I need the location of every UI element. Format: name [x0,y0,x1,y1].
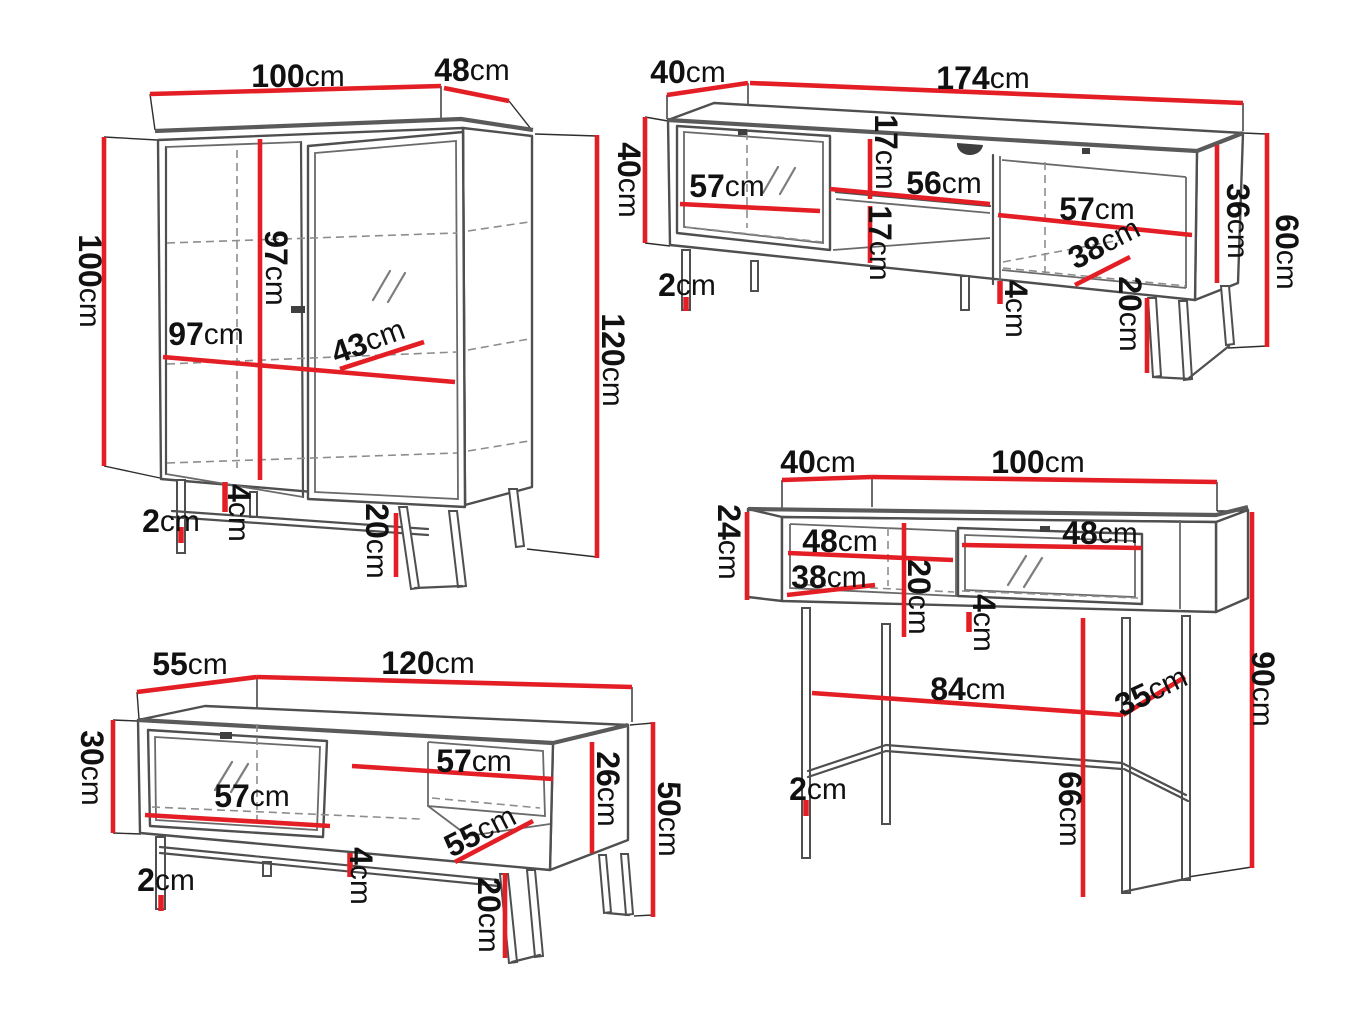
dim-label: 20cm [359,503,395,579]
tvstand-back-right-leg [1221,286,1234,345]
extension-line [535,134,597,136]
tv-stand: 40cm 174cm 40cm 57cm 17cm 56cm 17cm 57cm… [611,54,1305,380]
dim-label: 40cm [650,54,726,90]
dim-label: 90cm [1245,651,1281,727]
dim-label: 4cm [966,594,1002,652]
coffee-table: 55cm 120cm 30cm 57cm 57cm 26cm 50cm 55cm… [74,645,687,963]
dim-label: 40cm [611,142,647,218]
desk-back-right-leg [1182,616,1190,880]
cabinet-right-leg [449,511,466,587]
dim-label: 2cm [142,503,200,539]
extension-line [1243,133,1266,134]
door-handle [220,732,232,739]
dim-label: 2cm [658,267,716,303]
cabinet-right-foot-bar [415,586,462,588]
door-handle [738,129,747,135]
dim-label: 2cm [789,771,847,807]
dim-label: 40cm [780,444,856,480]
dim-label: 20cm [901,559,937,635]
console-desk: 40cm 100cm 24cm 48cm 38cm 20cm 48cm 4cm … [711,444,1281,897]
dim-label: 17cm [868,114,904,190]
dim-label: 36cm [1220,183,1256,259]
extension-line [150,94,155,130]
dim-label: 97cm [168,316,244,352]
extension-line [113,720,137,721]
furniture-dimensions-diagram: 100cm 48cm 100cm 97cm 97cm 43cm 120cm 4c… [0,0,1362,1022]
extension-line [113,833,141,834]
desk-stretcher [808,745,886,771]
extension-line [104,137,157,140]
dim-label: 100cm [251,58,344,94]
dim-label: 60cm [1269,214,1305,290]
tvstand-front-right-leg [1148,298,1161,377]
coffeetable-back-leg [621,854,633,915]
tvstand-stub-leg [751,261,758,291]
hinge-mark [1082,148,1090,154]
extension-line [1188,867,1252,877]
door-handle [291,306,305,313]
tvstand-right-leg [1179,301,1192,380]
dim-label: 100cm [72,234,108,327]
dim-label: 57cm [214,778,290,814]
cabinet-front-right-leg [399,507,419,589]
drawer-handle [1040,526,1050,532]
tvstand-side-foot-bar [1189,346,1229,378]
extension-line [645,117,668,121]
desk-right-foot-bar [1122,878,1190,892]
dim-label: 2cm [137,862,195,898]
dim-label: 57cm [436,743,512,779]
dim-label: 48cm [1062,515,1138,551]
dim-label: 57cm [689,168,765,204]
dim-label: 17cm [862,205,898,281]
desk-stretcher [1122,763,1186,795]
extension-line [137,692,139,719]
diagram-canvas: 100cm 48cm 100cm 97cm 97cm 43cm 120cm 4c… [0,0,1362,1022]
dim-label: 4cm [343,847,379,905]
dim-line-top-depth [444,88,509,101]
extension-line [630,723,653,725]
desk-left-side-sliver [748,509,782,601]
extension-line [104,466,160,478]
cabinet-back-right-leg [509,489,524,547]
desk-front-right-leg [1122,618,1130,893]
dim-label: 120cm [595,313,631,406]
dim-label: 97cm [258,230,294,306]
desk-top-edge [748,507,1248,515]
dim-label: 66cm [1052,771,1088,847]
dim-label: 24cm [711,504,747,580]
dim-label: 56cm [906,165,982,201]
desk-front-left-leg [802,608,810,858]
dim-label: 120cm [381,645,474,681]
tvstand-middle-leg [961,276,969,310]
dim-label: 4cm [998,280,1034,338]
desk-side-face [1216,510,1248,612]
dim-label: 4cm [221,484,257,542]
coffeetable-right-leg [527,870,543,957]
dim-label: 20cm [471,877,507,953]
cabinet-side-face [463,128,532,505]
dim-label: 55cm [152,646,228,682]
dim-label: 100cm [991,444,1084,480]
dim-label: 48cm [434,52,510,88]
dim-label: 84cm [930,671,1006,707]
dim-label: 30cm [74,730,110,806]
dim-label: 174cm [936,60,1029,96]
extension-line [1228,346,1267,348]
display-cabinet: 100cm 48cm 100cm 97cm 97cm 43cm 120cm 4c… [72,52,631,589]
extension-line [645,243,670,246]
dim-label: 48cm [802,523,878,559]
desk-stretcher [1124,769,1188,801]
dim-label: 50cm [651,781,687,857]
extension-line [527,549,597,557]
extension-line [634,915,653,916]
desk-back-left-leg [882,624,890,824]
coffeetable-back-right-leg [599,855,611,913]
dim-label: 38cm [791,559,867,595]
dim-label: 20cm [1112,276,1148,352]
dim-label: 26cm [590,751,626,827]
